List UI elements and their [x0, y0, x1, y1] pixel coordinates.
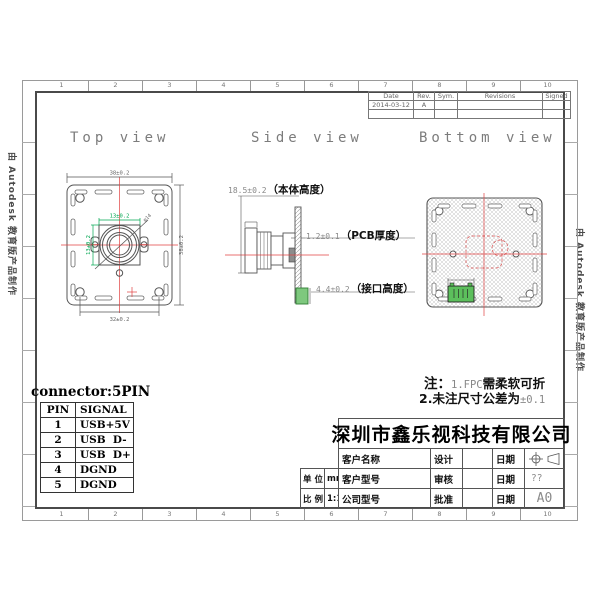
review-cell: 审核 — [430, 468, 463, 489]
rev-rev-value: A — [414, 101, 435, 110]
revision-empty-row — [369, 110, 571, 119]
customer-name-cell: 客户名称 — [338, 448, 431, 469]
dim-13-vertical: 13±0.2 — [86, 235, 92, 255]
grid-ref-label: 3 — [142, 80, 196, 91]
scale-value-cell: 1:1 — [324, 488, 339, 509]
grid-ref-label: 10 — [520, 509, 574, 520]
dim-38-top: 38±0.2 — [110, 171, 130, 177]
side-view-title: Side view — [251, 130, 363, 146]
connector-row: 2 USB D- — [41, 433, 134, 448]
mounting-hole — [155, 288, 163, 296]
rev-col-revisions: Revisions — [458, 92, 543, 101]
rev-col-date: Date — [369, 92, 414, 101]
grid-ref-label: 6 — [304, 509, 358, 520]
connector-row: 5 DGND — [41, 478, 134, 493]
rev-col-signed: Signed — [543, 92, 571, 101]
grid-ref-label: 4 — [196, 509, 250, 520]
note-2-num: 2. — [419, 391, 432, 406]
top-view-title: Top view — [70, 130, 169, 146]
company-model-cell: 公司型号 — [338, 488, 431, 509]
grid-ref-label: 3 — [142, 509, 196, 520]
rev-sym-value — [435, 101, 458, 110]
projection-symbol-cell — [524, 448, 565, 469]
company-name: 深圳市鑫乐视科技有限公司 — [338, 418, 565, 449]
design-cell: 设计 — [430, 448, 463, 469]
grid-ref-label: 1 — [35, 509, 88, 520]
design-value-cell — [462, 448, 493, 469]
mounting-hole — [76, 194, 84, 202]
unit-label-cell: 单 位 — [300, 468, 325, 489]
connector-pinout-table: PIN SIGNAL 1 USB+5V 2 USB D- 3 USB D+ 4 … — [40, 402, 134, 493]
grid-ref-label: 2 — [88, 80, 142, 91]
connector-header-row: PIN SIGNAL — [41, 403, 134, 418]
dim-13-horizontal: 13±0.2 — [110, 214, 130, 220]
grid-ref-label: 7 — [358, 509, 412, 520]
dim-32-bottom: 32±0.2 — [110, 317, 130, 323]
unit-value-cell: mm — [324, 468, 339, 489]
top-view-drawing: 38±0.2 38±0.2 32±0.2 13±0.2 13±0.2 φ14 — [55, 163, 210, 333]
pin-header: PIN — [41, 403, 76, 418]
connector-table-title: connector:5PIN — [31, 384, 150, 400]
sheet-cell: ?? — [524, 468, 565, 489]
lens-barrel-side — [245, 228, 295, 273]
autodesk-watermark-left: 由 Autodesk 教育版产品制作 — [6, 152, 19, 296]
grid-ref-label: 8 — [412, 80, 466, 91]
note-2-text: 未注尺寸公差为 — [432, 391, 520, 406]
date-cell: 日期 — [492, 468, 525, 489]
grid-ref-bottom: 1 2 3 4 5 6 7 8 9 10 — [35, 509, 565, 520]
grid-ref-label: 10 — [520, 80, 574, 91]
dim-value: 18.5±0.2 — [228, 186, 267, 195]
rev-col-sym: Sym. — [435, 92, 458, 101]
connector-row: 1 USB+5V — [41, 418, 134, 433]
rev-col-rev: Rev. — [414, 92, 435, 101]
dim-connector-height: 4.4±0.2 （接口高度） — [316, 281, 414, 296]
note-2-tol: ±0.1 — [520, 394, 545, 406]
date-cell: 日期 — [492, 448, 525, 469]
review-value-cell — [462, 468, 493, 489]
rev-date-value: 2014-03-12 — [369, 101, 414, 110]
rev-revisions-value — [458, 101, 543, 110]
grid-ref-label: 5 — [250, 80, 304, 91]
dim-caption: （本体高度） — [268, 182, 331, 197]
centerlines — [61, 177, 178, 313]
grid-ref-label: 4 — [196, 80, 250, 91]
mounting-hole — [76, 288, 84, 296]
grid-ref-left-ticks — [22, 91, 35, 509]
dim-body-height: 18.5±0.2 （本体高度） — [228, 182, 331, 197]
grid-ref-label: 1 — [35, 80, 88, 91]
grid-ref-label: 8 — [412, 509, 466, 520]
grid-ref-top: 1 2 3 4 5 6 7 8 9 10 — [35, 80, 565, 91]
grid-ref-label: 9 — [466, 509, 520, 520]
drawing-sheet: 由 Autodesk 教育版产品制作 由 Autodesk 教育版产品制作 1 … — [0, 0, 600, 600]
bottom-plate-outline — [427, 198, 542, 307]
bottom-view-drawing — [420, 192, 565, 317]
dim-caption: （PCB厚度） — [341, 228, 406, 243]
usb-connector-side — [296, 288, 308, 304]
date-cell: 日期 — [492, 488, 525, 509]
revision-header-row: Date Rev. Sym. Revisions Signed — [369, 92, 571, 101]
grid-ref-label: 2 — [88, 509, 142, 520]
note-line-2: 2.未注尺寸公差为±0.1 — [419, 388, 545, 407]
revision-table: Date Rev. Sym. Revisions Signed 2014-03-… — [368, 91, 571, 119]
signal-header: SIGNAL — [76, 403, 134, 418]
dim-pcb-thickness: 1.2±0.1 （PCB厚度） — [306, 228, 406, 243]
scale-label-cell: 比 例 — [300, 488, 325, 509]
third-angle-projection-icon — [526, 450, 563, 468]
sheet-size-cell: A0 — [524, 488, 565, 509]
dim-caption: （接口高度） — [351, 281, 414, 296]
grid-ref-label: 9 — [466, 80, 520, 91]
connector-row: 3 USB D+ — [41, 448, 134, 463]
approve-value-cell — [462, 488, 493, 509]
connector-row: 4 DGND — [41, 463, 134, 478]
dim-value: 1.2±0.1 — [306, 232, 340, 241]
customer-model-cell: 客户型号 — [338, 468, 431, 489]
approve-cell: 批准 — [430, 488, 463, 509]
rev-signed-value — [543, 101, 571, 110]
dim-value: 4.4±0.2 — [316, 285, 350, 294]
grid-ref-label: 5 — [250, 509, 304, 520]
dim-phi14: φ14 — [142, 213, 153, 224]
revision-data-row: 2014-03-12 A — [369, 101, 571, 110]
mounting-hole — [155, 194, 163, 202]
dim-38-right: 38±0.2 — [179, 235, 185, 255]
grid-ref-label: 6 — [304, 80, 358, 91]
grid-ref-label: 7 — [358, 80, 412, 91]
bottom-view-title: Bottom view — [419, 130, 556, 146]
